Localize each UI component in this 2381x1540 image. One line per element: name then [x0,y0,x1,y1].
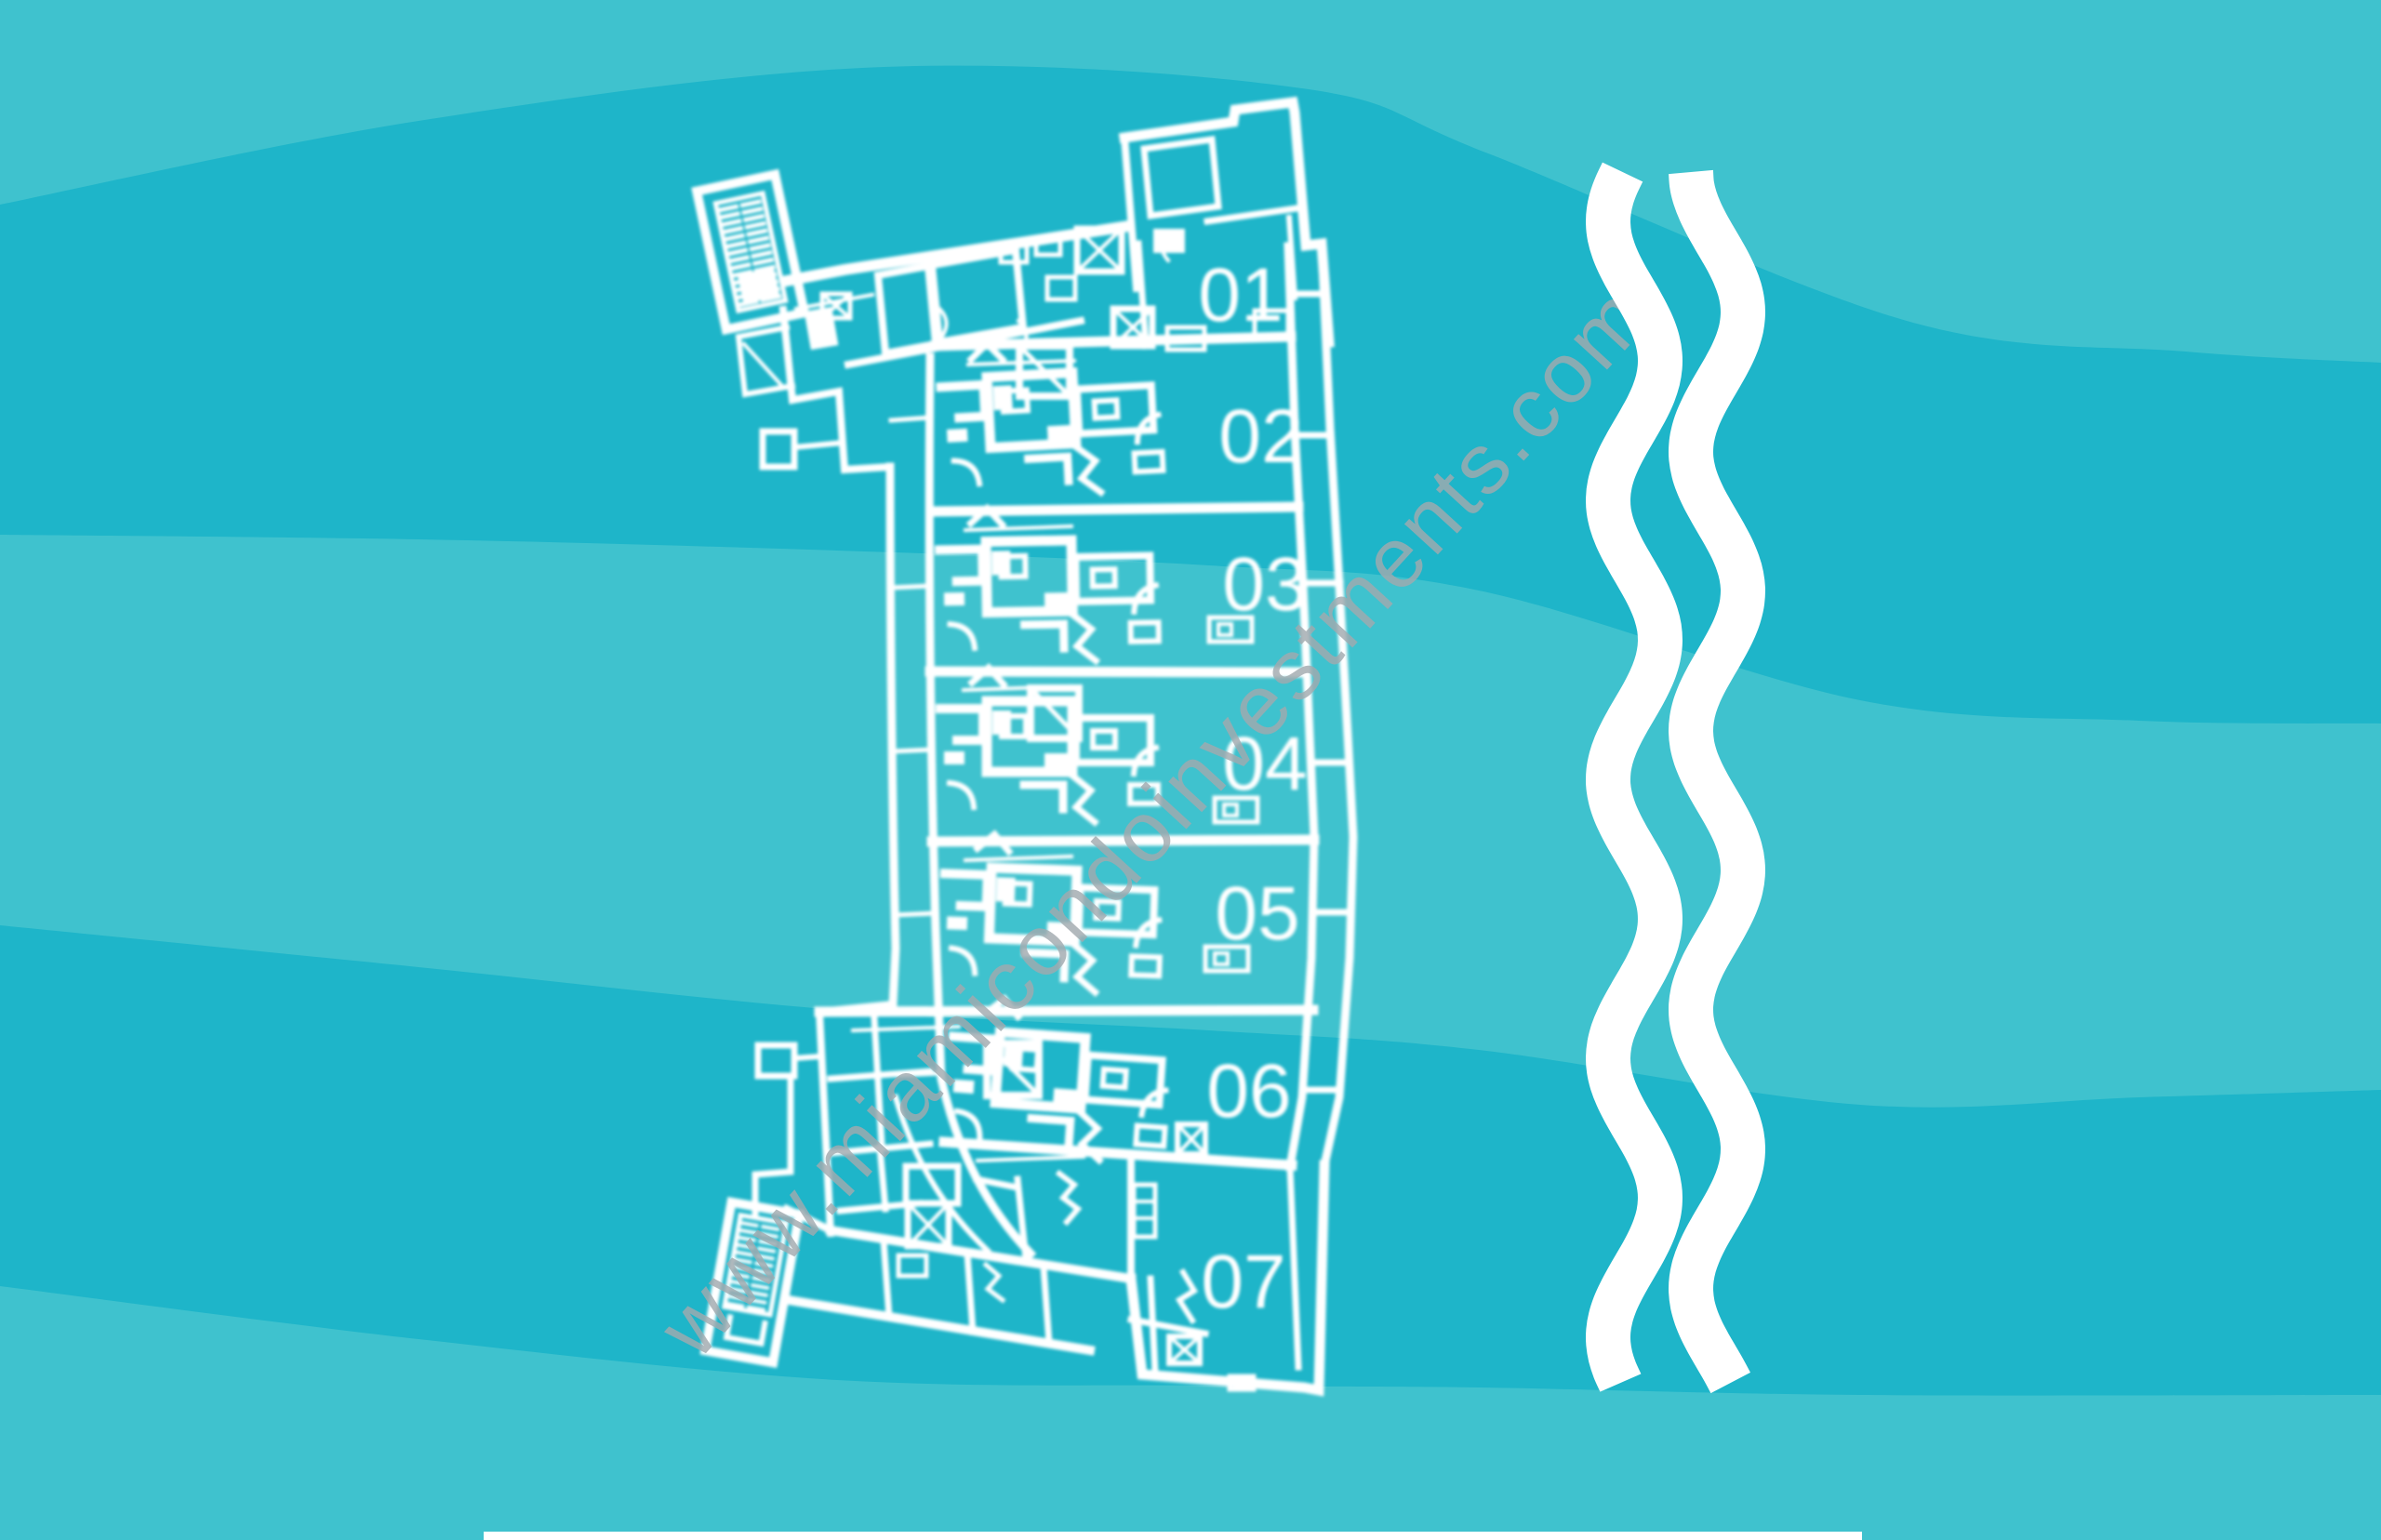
svg-text:01: 01 [1198,253,1283,338]
svg-text:05: 05 [1215,871,1299,956]
svg-text:02: 02 [1218,394,1303,479]
svg-text:06: 06 [1206,1049,1291,1134]
svg-text:07: 07 [1201,1240,1285,1324]
